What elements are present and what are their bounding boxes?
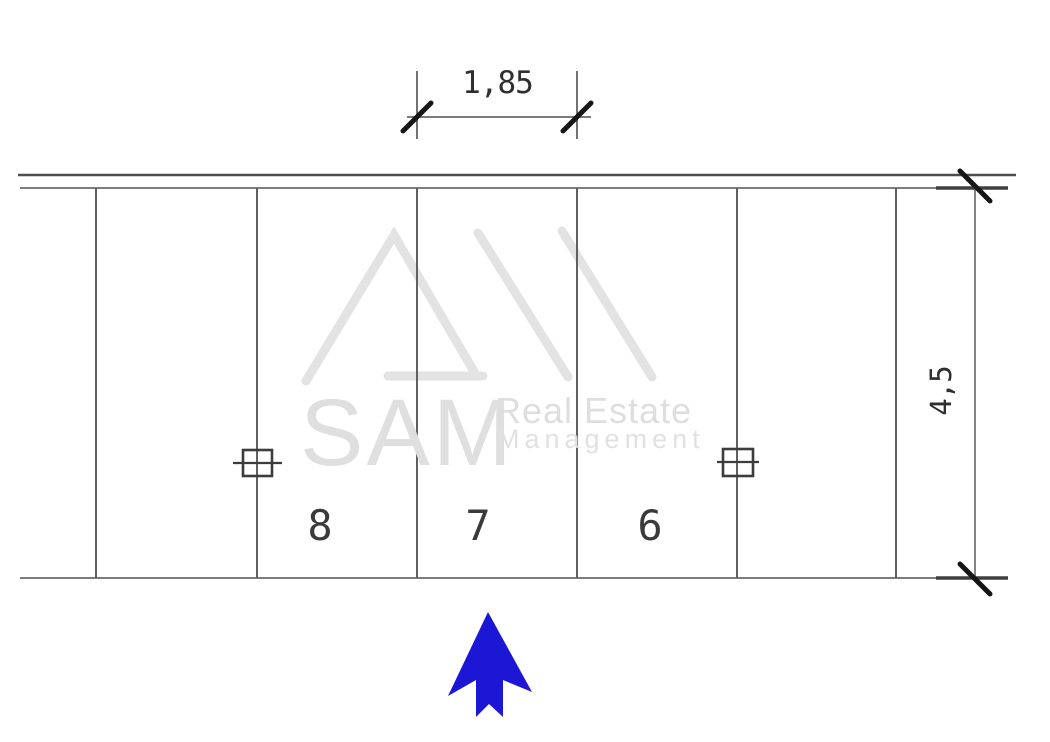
parking-plan-drawing: 1,85 4,5 8 7 6 SAM Real Estate Managemen… — [0, 0, 1050, 742]
dim-label-stall-width: 1,85 — [445, 66, 550, 100]
watermark-tagline-bottom: Management — [497, 426, 705, 452]
dim-label-stall-depth: 4,5 — [913, 361, 969, 421]
watermark-diagonal-1 — [478, 233, 568, 377]
watermark-diagonal-2 — [562, 231, 652, 377]
stall-number-8: 8 — [290, 502, 350, 550]
stall-number-7: 7 — [448, 502, 508, 550]
watermark-brand-text: SAM — [300, 386, 515, 481]
watermark-logo — [306, 231, 652, 381]
stall-number-6: 6 — [620, 502, 680, 550]
watermark-triangle — [306, 235, 476, 381]
watermark-tagline-top: Real Estate — [495, 394, 692, 428]
plan-linework — [0, 0, 1050, 742]
entry-arrow-icon — [448, 612, 532, 717]
